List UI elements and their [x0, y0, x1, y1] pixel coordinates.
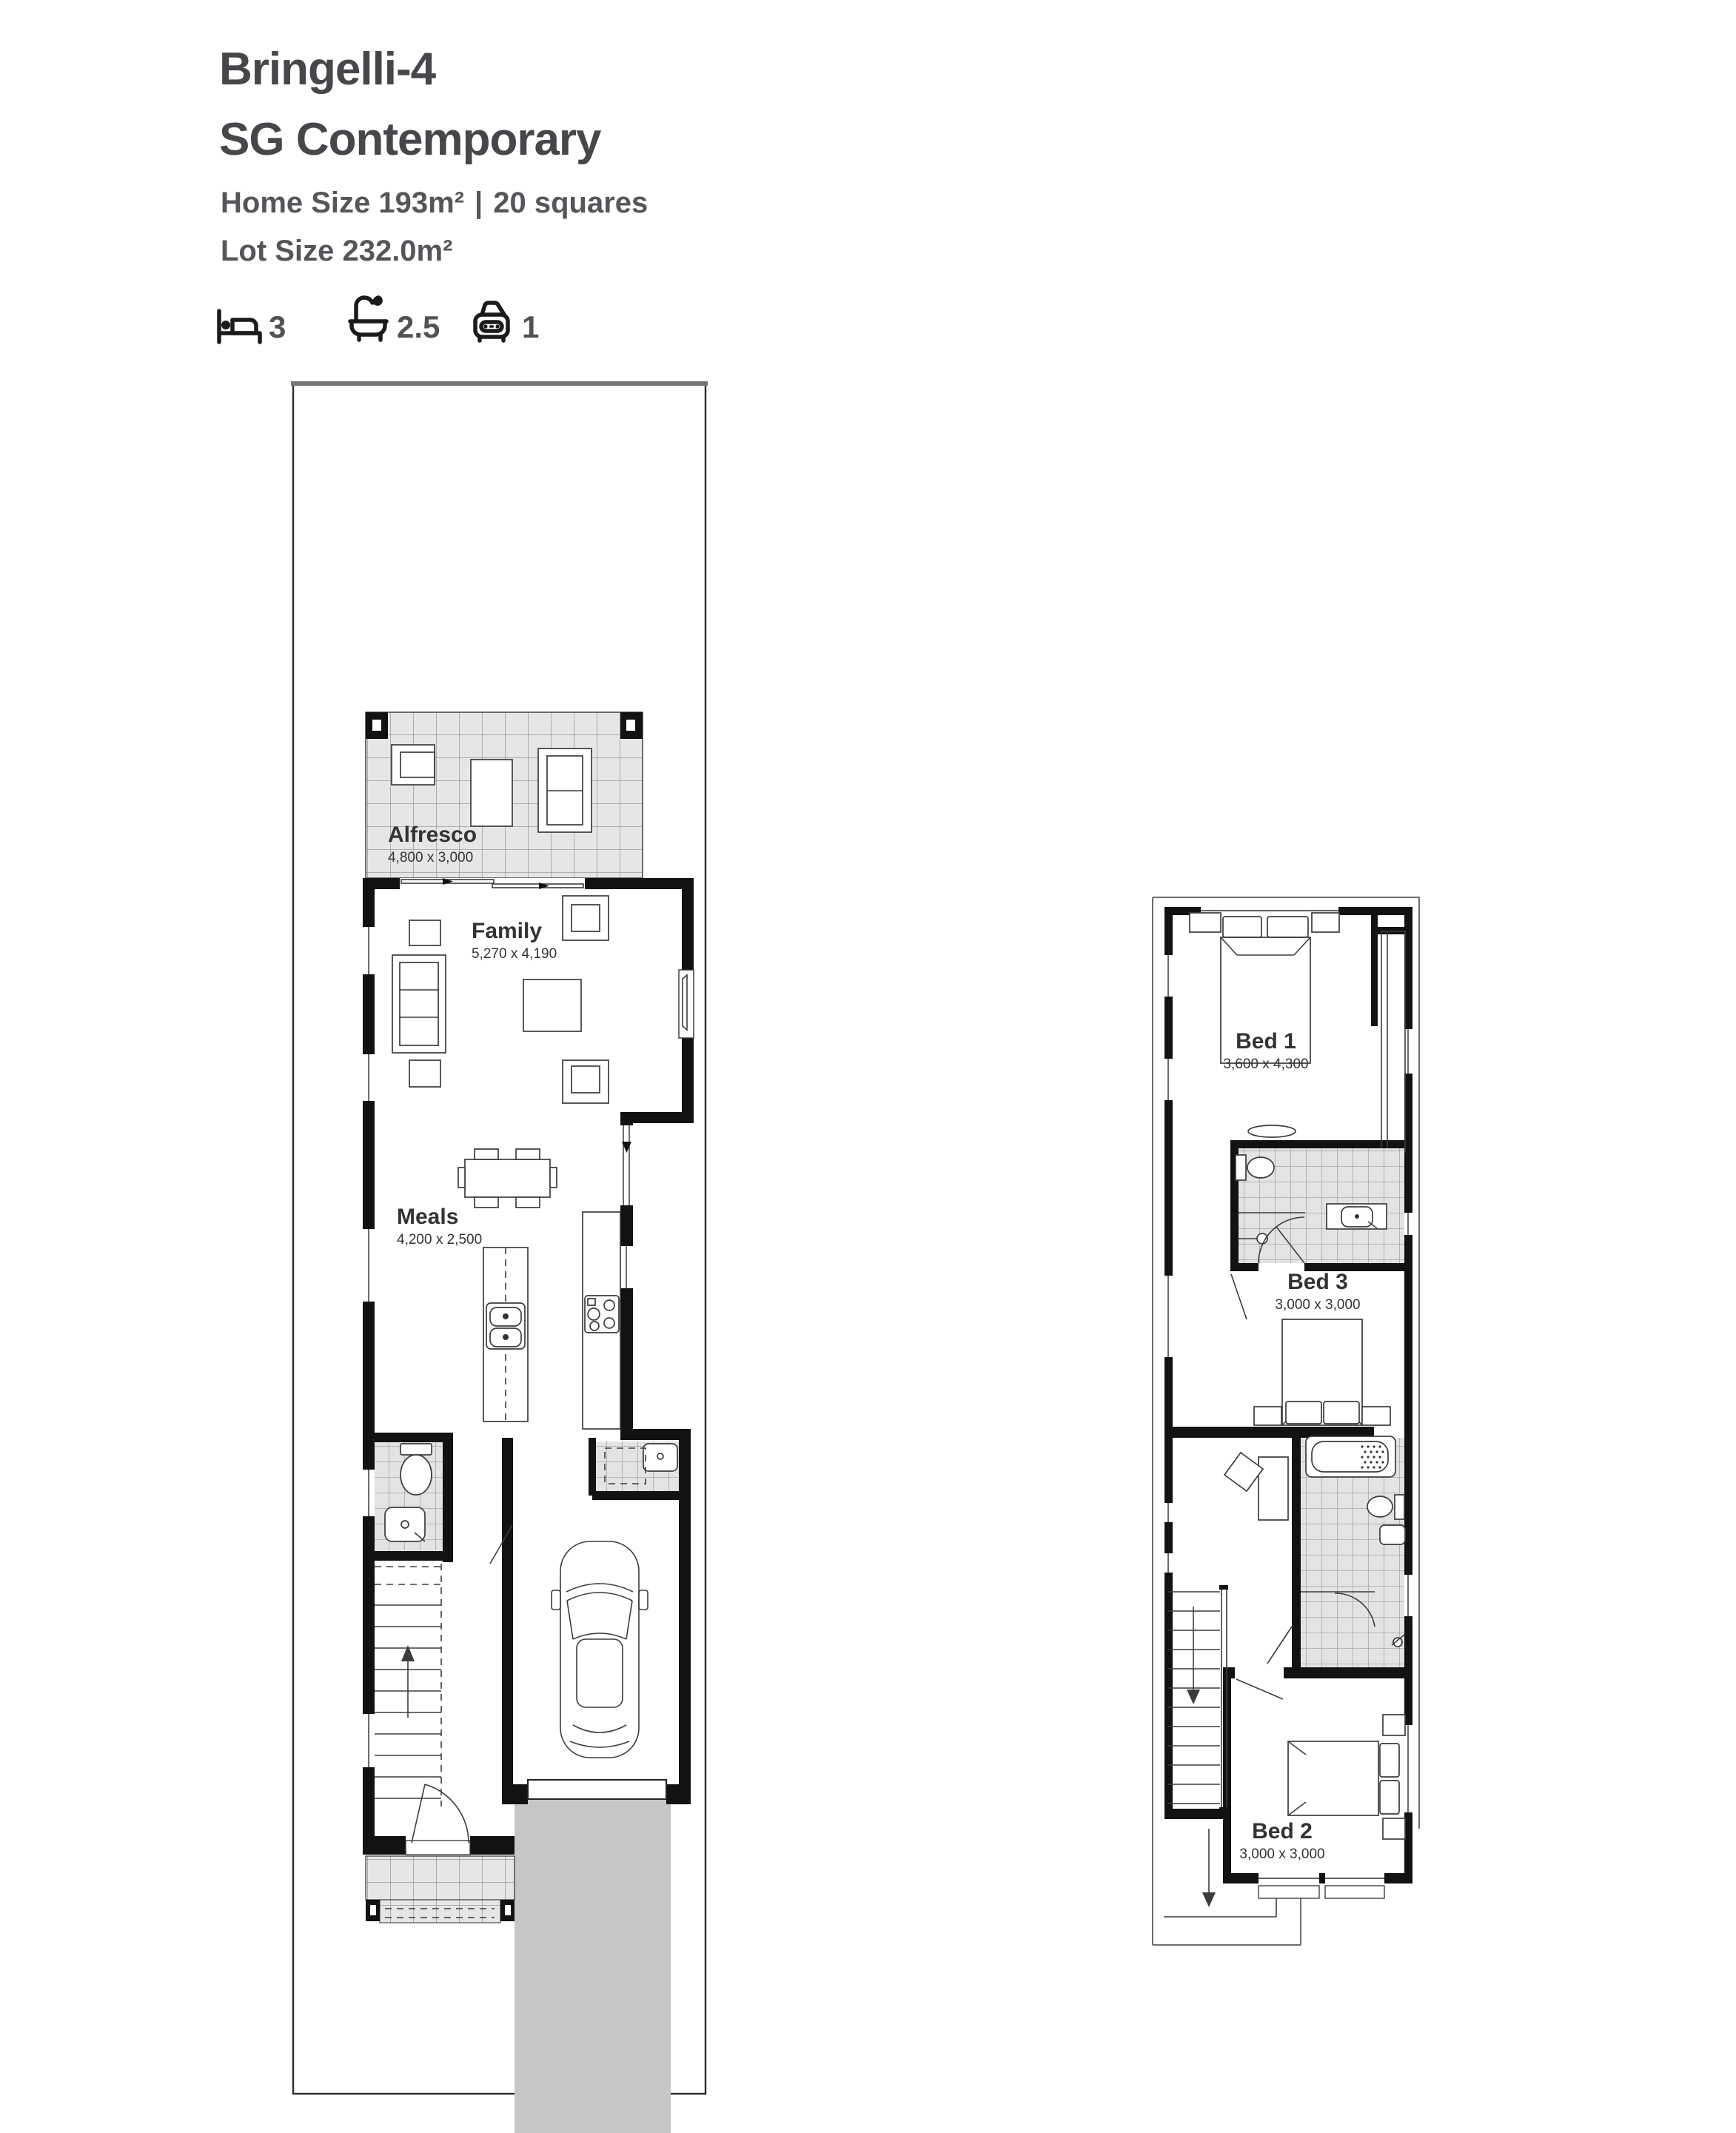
wardrobe: [1381, 931, 1405, 1152]
room-name: Alfresco: [388, 823, 477, 847]
garage-car: [552, 1541, 648, 1758]
room-dims: 5,270 x 4,190: [472, 945, 557, 964]
stairs-ground: [375, 1564, 441, 1806]
tv-niche: [679, 970, 694, 1038]
room-dims: 3,000 x 3,000: [1219, 1846, 1345, 1864]
garage-door: [528, 1780, 666, 1799]
room-dims: 3,000 x 3,000: [1255, 1296, 1381, 1315]
room-name: Bed 2: [1219, 1820, 1345, 1844]
ground-floor-plan: [291, 383, 708, 2133]
porch: [366, 1856, 515, 1923]
room-name: Meals: [397, 1205, 482, 1229]
bed2-room: [1236, 1679, 1405, 1839]
room-dims: 4,200 x 2,500: [397, 1231, 482, 1250]
ensuite: [1236, 1148, 1404, 1263]
driveway: [515, 1800, 671, 2133]
powder-room: [375, 1442, 443, 1551]
room-name: Bed 3: [1255, 1270, 1381, 1294]
floor-plan-drawing: .wall{fill:#121212;} .lot{fill:none;stro…: [0, 0, 1736, 2133]
room-dims: 3,600 x 4,300: [1203, 1056, 1329, 1074]
room-label-meals: Meals 4,200 x 2,500: [397, 1205, 482, 1249]
entry: [406, 1784, 470, 1855]
room-label-family: Family 5,270 x 4,190: [472, 920, 557, 963]
entry-door-arc: [425, 1784, 469, 1843]
stair-down-arrow: [1187, 1690, 1200, 1704]
garage: [490, 1525, 666, 1799]
stair-down-arrow-void: [1202, 1892, 1216, 1907]
room-label-alfresco: Alfresco 4,800 x 3,000: [388, 823, 477, 867]
meals-area: [458, 1149, 557, 1208]
desk: [1259, 1457, 1288, 1520]
room-name: Family: [472, 920, 557, 943]
kitchen: [483, 1212, 620, 1429]
room-label-bed2: Bed 2 3,000 x 3,000: [1219, 1820, 1345, 1864]
pendant-light: [1248, 1125, 1296, 1137]
room-label-bed3: Bed 3 3,000 x 3,000: [1255, 1270, 1381, 1314]
chair: [1224, 1453, 1263, 1491]
stairs-first: [1167, 1585, 1228, 1812]
room-dims: 4,800 x 3,000: [388, 849, 477, 868]
floor-plan-page: Bringelli-4 SG Contemporary Home Size 19…: [0, 0, 1736, 2133]
laundry: [596, 1441, 679, 1491]
room-name: Bed 1: [1203, 1030, 1329, 1054]
room-label-bed1: Bed 1 3,600 x 4,300: [1203, 1030, 1329, 1074]
